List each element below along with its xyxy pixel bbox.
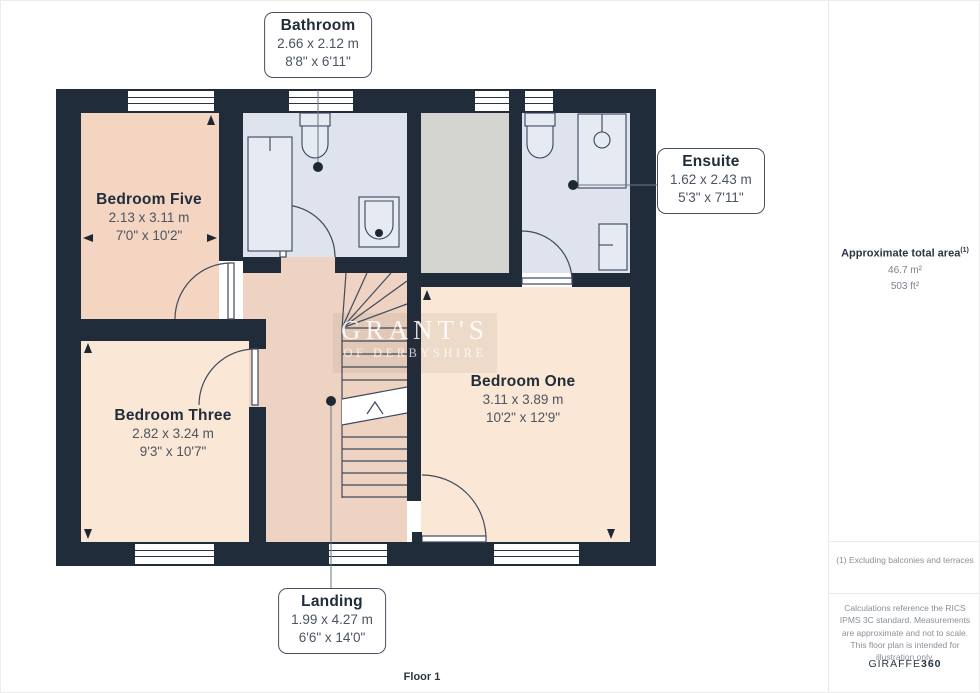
wall bbox=[219, 113, 243, 261]
room-name: Bedroom Three bbox=[114, 407, 231, 425]
bathroom-label: Bathroom 2.66 x 2.12 m 8'8" x 6'11" bbox=[264, 12, 372, 78]
watermark-line2: OF DERBYSHIRE bbox=[333, 346, 497, 361]
brand-suffix: 360 bbox=[921, 658, 942, 670]
room-dim-imperial: 5'3" x 7'11" bbox=[670, 189, 752, 207]
room-dim-imperial: 9'3" x 10'7" bbox=[114, 443, 231, 461]
room-dim-metric: 2.82 x 3.24 m bbox=[114, 425, 231, 443]
room-name: Bedroom One bbox=[471, 373, 576, 391]
total-area-metric: 46.7 m² bbox=[829, 265, 980, 276]
window bbox=[128, 89, 214, 113]
window bbox=[289, 89, 353, 113]
window bbox=[494, 542, 579, 566]
wall bbox=[407, 113, 421, 501]
room-dim-metric: 1.62 x 2.43 m bbox=[670, 171, 752, 189]
window bbox=[525, 89, 553, 113]
total-area-label: Approximate total area bbox=[841, 248, 960, 260]
wall bbox=[243, 257, 281, 273]
room-dim-metric: 2.66 x 2.12 m bbox=[277, 35, 359, 53]
floorplan-page: GRANT'S OF DERBYSHIRE Bathroom 2.66 x 2.… bbox=[0, 0, 980, 693]
void-area-floor bbox=[421, 113, 509, 273]
total-area-summary: Approximate total area(1) 46.7 m² 503 ft… bbox=[829, 247, 980, 292]
window bbox=[329, 542, 387, 566]
footnote-marker: (1) bbox=[960, 247, 969, 254]
wall bbox=[630, 89, 656, 566]
room-dim-imperial: 10'2" x 12'9" bbox=[471, 409, 576, 427]
area-footnote: (1) Excluding balconies and terraces bbox=[829, 555, 980, 565]
ensuite-label: Ensuite 1.62 x 2.43 m 5'3" x 7'11" bbox=[657, 148, 765, 214]
room-name: Bathroom bbox=[277, 17, 359, 35]
sidebar-divider bbox=[829, 593, 980, 594]
watermark-line1: GRANT'S bbox=[333, 314, 497, 346]
bedroom-one-label: Bedroom One 3.11 x 3.89 m 10'2" x 12'9" bbox=[471, 373, 576, 427]
landing-label: Landing 1.99 x 4.27 m 6'6" x 14'0" bbox=[278, 588, 386, 654]
floor-caption: Floor 1 bbox=[404, 671, 441, 683]
window bbox=[475, 89, 509, 113]
room-dim-metric: 3.11 x 3.89 m bbox=[471, 391, 576, 409]
total-area-imperial: 503 ft² bbox=[829, 281, 980, 292]
room-dim-imperial: 7'0" x 10'2" bbox=[96, 227, 202, 245]
wall bbox=[56, 319, 266, 341]
room-name: Landing bbox=[291, 593, 373, 611]
ensuite-floor bbox=[522, 113, 630, 273]
brand-name: GIRAFFE bbox=[868, 658, 921, 670]
bedroom-three-label: Bedroom Three 2.82 x 3.24 m 9'3" x 10'7" bbox=[114, 407, 231, 461]
room-dim-imperial: 6'6" x 14'0" bbox=[291, 629, 373, 647]
room-dim-imperial: 8'8" x 6'11" bbox=[277, 53, 359, 71]
room-name: Bedroom Five bbox=[96, 191, 202, 209]
info-sidebar: Approximate total area(1) 46.7 m² 503 ft… bbox=[828, 1, 980, 693]
agency-watermark: GRANT'S OF DERBYSHIRE bbox=[333, 313, 497, 373]
wall bbox=[572, 273, 630, 287]
window bbox=[135, 542, 214, 566]
room-dim-metric: 2.13 x 3.11 m bbox=[96, 209, 202, 227]
wall bbox=[335, 257, 407, 273]
wall bbox=[509, 113, 522, 273]
wall bbox=[407, 273, 522, 287]
wall bbox=[249, 341, 266, 349]
giraffe360-logo: GIRAFFE360 bbox=[829, 658, 980, 670]
landing-floor bbox=[243, 257, 407, 542]
disclaimer-text: Calculations reference the RICS IPMS 3C … bbox=[837, 602, 973, 664]
bathroom-floor bbox=[243, 113, 407, 257]
sidebar-divider bbox=[829, 541, 980, 542]
bedroom-five-label: Bedroom Five 2.13 x 3.11 m 7'0" x 10'2" bbox=[96, 191, 202, 245]
wall bbox=[249, 407, 266, 542]
room-dim-metric: 1.99 x 4.27 m bbox=[291, 611, 373, 629]
total-area-title: Approximate total area(1) bbox=[829, 247, 980, 260]
room-name: Ensuite bbox=[670, 153, 752, 171]
